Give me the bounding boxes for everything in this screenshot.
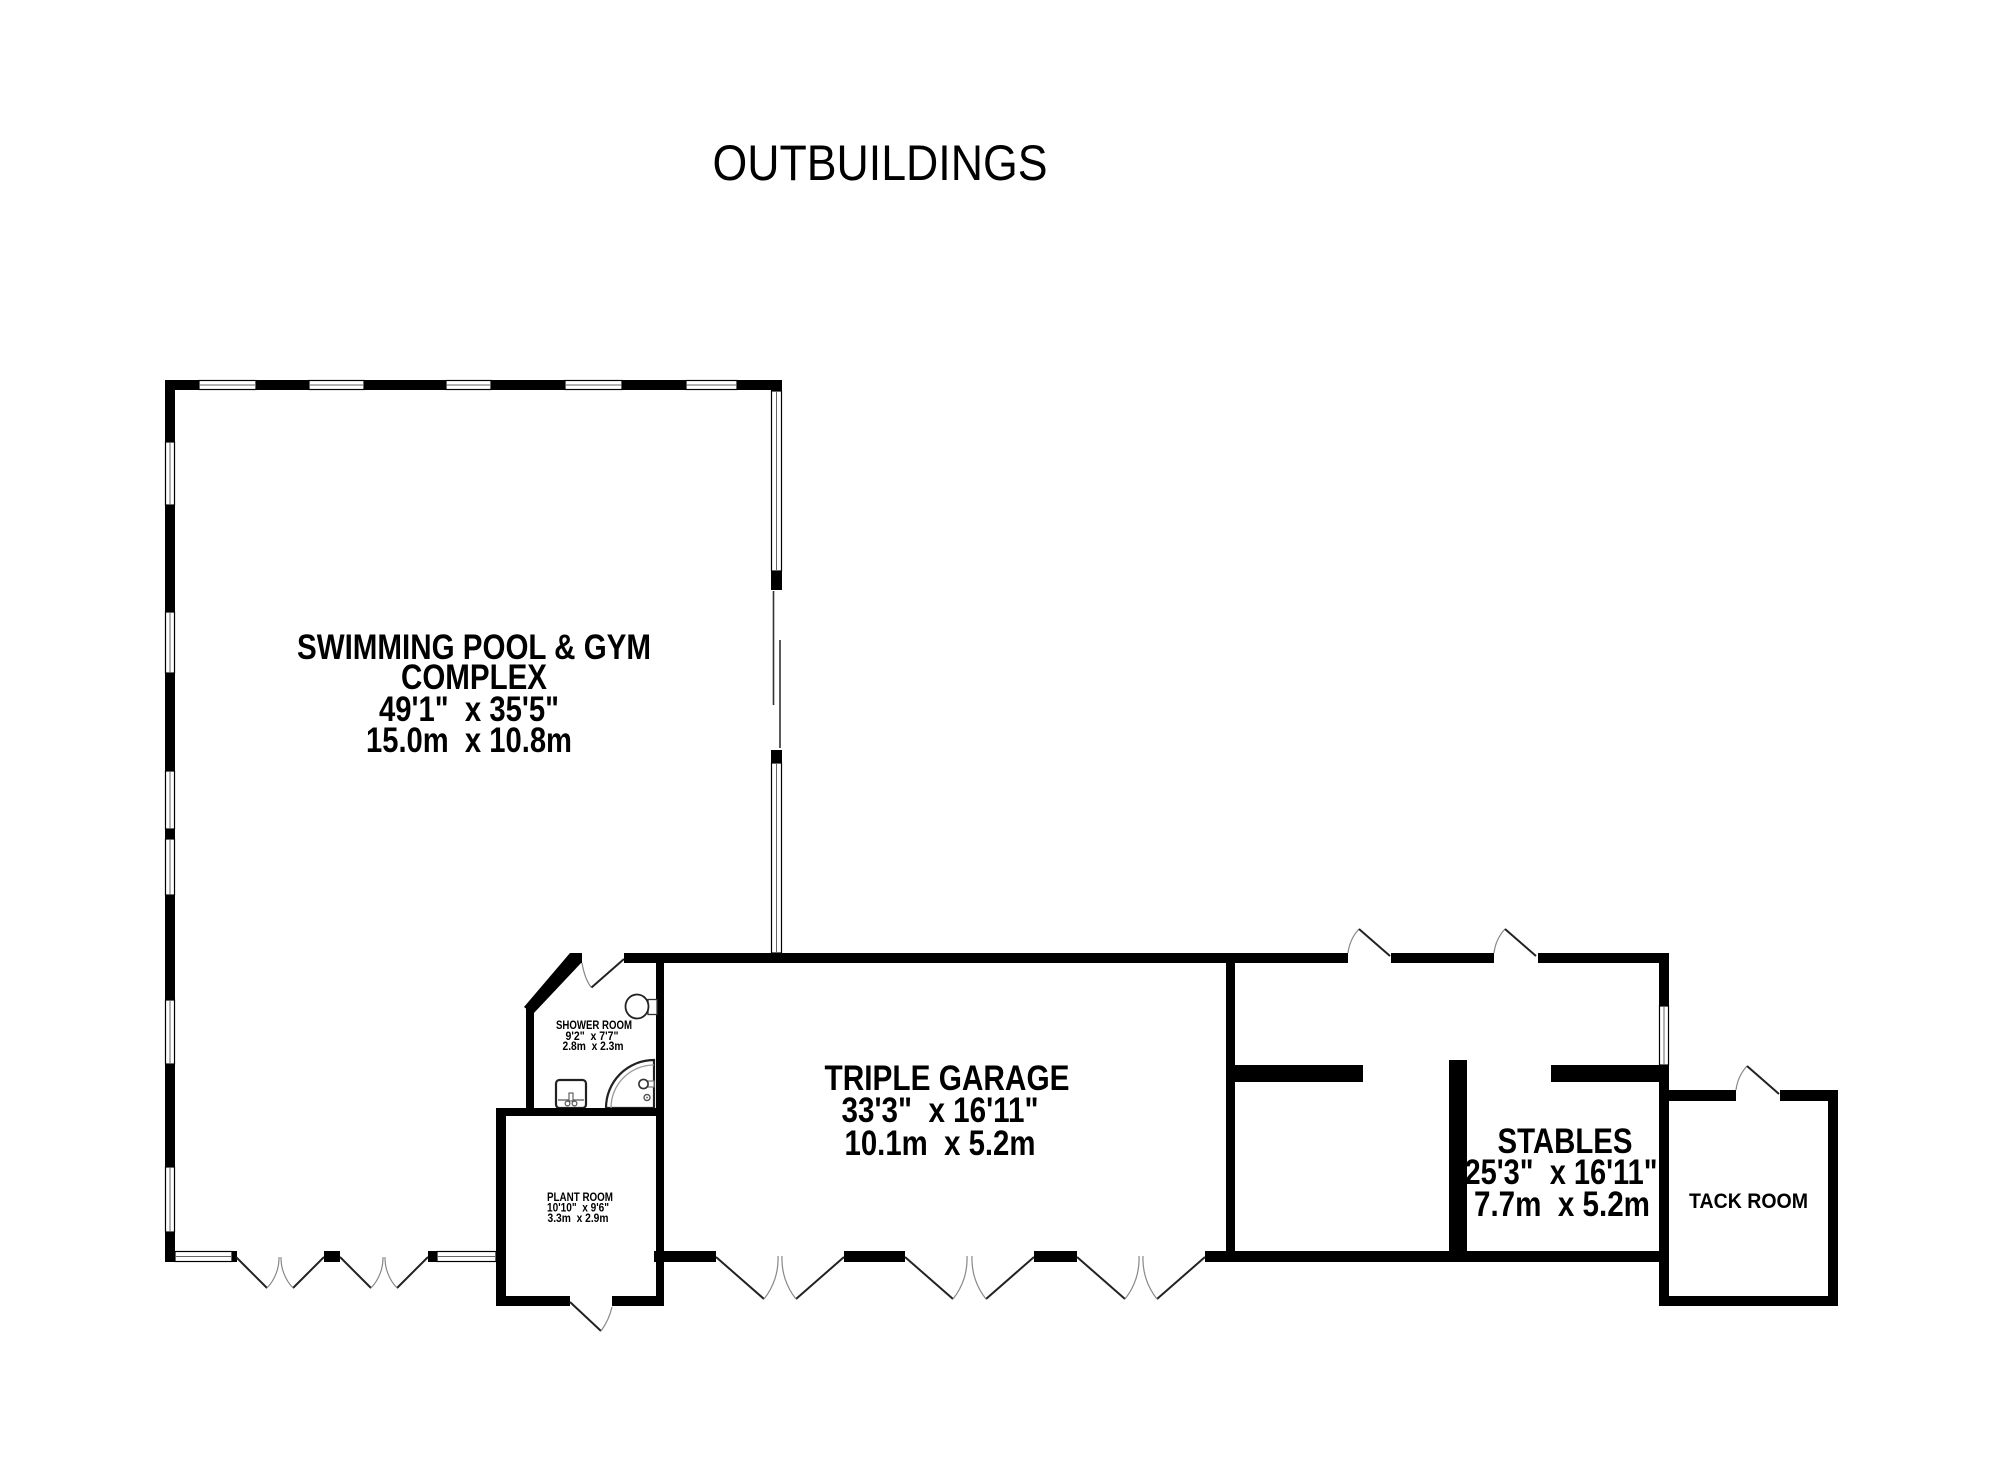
svg-text:7.7m x 5.2m: 7.7m x 5.2m bbox=[1474, 1185, 1650, 1224]
svg-text:2.8m x 2.3m: 2.8m x 2.3m bbox=[563, 1039, 624, 1053]
svg-text:10.1m x 5.2m: 10.1m x 5.2m bbox=[845, 1124, 1036, 1163]
svg-text:OUTBUILDINGS: OUTBUILDINGS bbox=[713, 135, 1048, 191]
svg-text:TACK ROOM: TACK ROOM bbox=[1689, 1190, 1808, 1213]
svg-text:15.0m x 10.8m: 15.0m x 10.8m bbox=[366, 721, 572, 760]
svg-text:3.3m x 2.9m: 3.3m x 2.9m bbox=[548, 1211, 609, 1225]
